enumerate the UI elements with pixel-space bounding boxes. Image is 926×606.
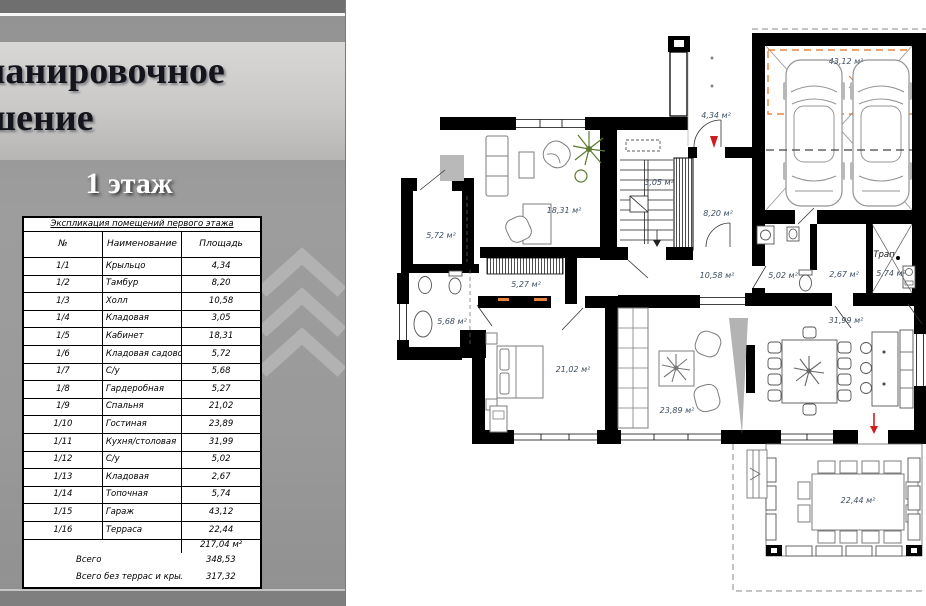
table-row: 1/3Холл10,58 bbox=[23, 293, 261, 311]
hatched-partition bbox=[674, 158, 693, 250]
kitchen-furniture bbox=[768, 327, 913, 434]
sink-small-wc bbox=[787, 227, 799, 241]
col-header-name: Наименование bbox=[102, 232, 181, 258]
staircase bbox=[620, 140, 673, 247]
table-row: 1/8Гардеробная5,27 bbox=[23, 381, 261, 399]
table-row: 1/16Терраса22,44 bbox=[23, 521, 261, 539]
bar-stool bbox=[861, 343, 872, 354]
floor-label: 1 этаж bbox=[0, 167, 258, 201]
table-row: 1/15Гараж43,12 bbox=[23, 504, 261, 522]
exterior-steps bbox=[747, 450, 767, 498]
room-area-label: 5,68 м² bbox=[437, 317, 467, 326]
side-table bbox=[519, 152, 534, 178]
bedroom-furniture bbox=[486, 333, 543, 432]
room-area-label: 23,89 м² bbox=[660, 406, 695, 415]
armchair bbox=[692, 382, 722, 413]
room-area-label: 3,05 м² bbox=[644, 178, 674, 187]
subtotal-area: 217,04 м² bbox=[182, 539, 261, 553]
page: { "panel": { "title_line1": "ланировочно… bbox=[0, 0, 926, 606]
car-1 bbox=[783, 60, 845, 206]
table-row: 1/5Кабинет18,31 bbox=[23, 328, 261, 346]
awning bbox=[440, 155, 464, 181]
watermark-chevrons-icon bbox=[256, 240, 346, 390]
page-title-line2: шение bbox=[0, 95, 345, 142]
table-row: 1/4Кладовая3,05 bbox=[23, 310, 261, 328]
room-area-label: 18,31 м² bbox=[547, 206, 582, 215]
porch bbox=[688, 52, 714, 146]
entrance-marker bbox=[710, 136, 718, 148]
col-header-num: № bbox=[23, 232, 102, 258]
armchair bbox=[539, 137, 575, 172]
table-row: 1/12С/у5,02 bbox=[23, 451, 261, 469]
window-living bbox=[621, 432, 721, 442]
room-area-label: 31,99 м² bbox=[829, 316, 864, 325]
tv bbox=[746, 345, 755, 393]
room-area-label: 5,02 м² bbox=[768, 271, 798, 280]
table-header-row: № Наименование Площадь bbox=[23, 232, 261, 258]
total-value: 348,53 bbox=[182, 553, 261, 570]
total-label: Всего bbox=[23, 553, 182, 570]
table-title: Экспликация помещений первого этажа bbox=[50, 219, 233, 229]
window-bedroom bbox=[514, 432, 597, 442]
opening-hall-living bbox=[700, 298, 745, 305]
page-title-line1: ланировочное bbox=[0, 48, 345, 95]
terrace bbox=[747, 444, 922, 556]
table-row: 1/9Спальня21,02 bbox=[23, 398, 261, 416]
room-area-label: 43,12 м² bbox=[829, 57, 864, 66]
explication-table: Экспликация помещений первого этажа № На… bbox=[22, 216, 262, 589]
cabinet-furniture bbox=[486, 131, 605, 245]
title-band: ланировочное шение bbox=[0, 42, 345, 160]
room-area-label: 5,74 м² bbox=[876, 269, 906, 278]
window-right-wall bbox=[917, 334, 924, 386]
table-row: 1/1Крыльцо4,34 bbox=[23, 258, 261, 276]
table-rows: 1/1Крыльцо4,341/2Тамбур8,201/3Холл10,581… bbox=[23, 258, 261, 540]
table-row: 1/6Кладовая садового инвентаря5,72 bbox=[23, 345, 261, 363]
pillar bbox=[670, 52, 687, 116]
window-kitchen bbox=[781, 432, 833, 442]
table-title-row: Экспликация помещений первого этажа bbox=[23, 217, 261, 232]
room-area-label: 5,27 м² bbox=[511, 280, 541, 289]
wardrobe-hatch bbox=[487, 258, 563, 274]
window-cabinet bbox=[516, 117, 585, 130]
washing-machine bbox=[757, 226, 774, 244]
room-area-label: 2,67 м² bbox=[829, 270, 859, 279]
table-row: 1/14Топочная5,74 bbox=[23, 486, 261, 504]
car-2 bbox=[850, 60, 912, 206]
col-header-area: Площадь bbox=[182, 232, 261, 258]
left-panel: ланировочное шение 1 этаж Экспликация по… bbox=[0, 0, 346, 606]
room-area-label: 21,02 м² bbox=[556, 365, 591, 374]
table-row: 1/2Тамбур8,20 bbox=[23, 275, 261, 293]
total-row: Всего 348,53 bbox=[23, 553, 261, 570]
armchair bbox=[693, 329, 724, 360]
subtotal-row: 217,04 м² bbox=[23, 539, 261, 553]
watermark-wedge bbox=[729, 318, 748, 434]
kitchen-island bbox=[872, 332, 898, 406]
total2-label: Всего без террас и крылец bbox=[23, 570, 182, 588]
panel-top-band bbox=[0, 0, 345, 16]
table-row: 1/10Гостиная23,89 bbox=[23, 416, 261, 434]
panel-bottom-band bbox=[0, 589, 345, 606]
room-area-label: 5,72 м² bbox=[426, 231, 456, 240]
room-area-label: 8,20 м² bbox=[703, 209, 733, 218]
bar-stool bbox=[861, 363, 872, 374]
toilet-small-wc bbox=[799, 270, 812, 291]
room-area-label: 4,34 м² bbox=[701, 111, 731, 120]
kitchen-counter bbox=[900, 330, 913, 408]
total-row-2: Всего без террас и крылец 317,32 bbox=[23, 570, 261, 588]
total2-value: 317,32 bbox=[182, 570, 261, 588]
room-area-label: Трап bbox=[873, 250, 895, 260]
table-row: 1/7С/у5,68 bbox=[23, 363, 261, 381]
window-left-wall bbox=[400, 304, 407, 340]
sofa bbox=[486, 136, 508, 196]
room-area-label: 10,58 м² bbox=[700, 271, 735, 280]
room-area-label: 22,44 м² bbox=[841, 496, 876, 505]
table-row: 1/11Кухня/столовая31,99 bbox=[23, 433, 261, 451]
nightstand bbox=[486, 333, 497, 344]
garage bbox=[766, 46, 918, 210]
bar-stool bbox=[861, 383, 872, 394]
floor-plan: 43,12 м²4,34 м²18,31 м²3,05 м²8,20 м²5,7… bbox=[346, 0, 926, 606]
table-row: 1/13Кладовая2,67 bbox=[23, 469, 261, 487]
